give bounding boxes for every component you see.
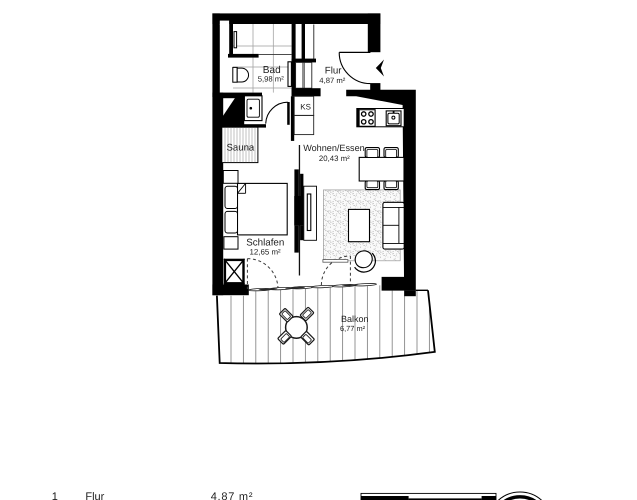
svg-text:20,43 m²: 20,43 m² <box>319 154 350 163</box>
svg-text:4,87 m²: 4,87 m² <box>319 76 346 85</box>
svg-text:Sauna: Sauna <box>227 142 255 153</box>
svg-text:Wohnen/Essen: Wohnen/Essen <box>303 143 365 153</box>
svg-text:1: 1 <box>52 491 58 500</box>
svg-text:Balkon: Balkon <box>341 314 369 324</box>
svg-text:5,98 m²: 5,98 m² <box>258 75 285 84</box>
svg-text:Flur: Flur <box>325 66 342 77</box>
svg-text:4,87 m²: 4,87 m² <box>211 491 254 500</box>
svg-text:12,65 m²: 12,65 m² <box>250 248 282 257</box>
svg-text:Flur: Flur <box>85 491 104 500</box>
svg-text:6,77 m²: 6,77 m² <box>340 324 366 333</box>
svg-text:KS: KS <box>300 102 311 111</box>
